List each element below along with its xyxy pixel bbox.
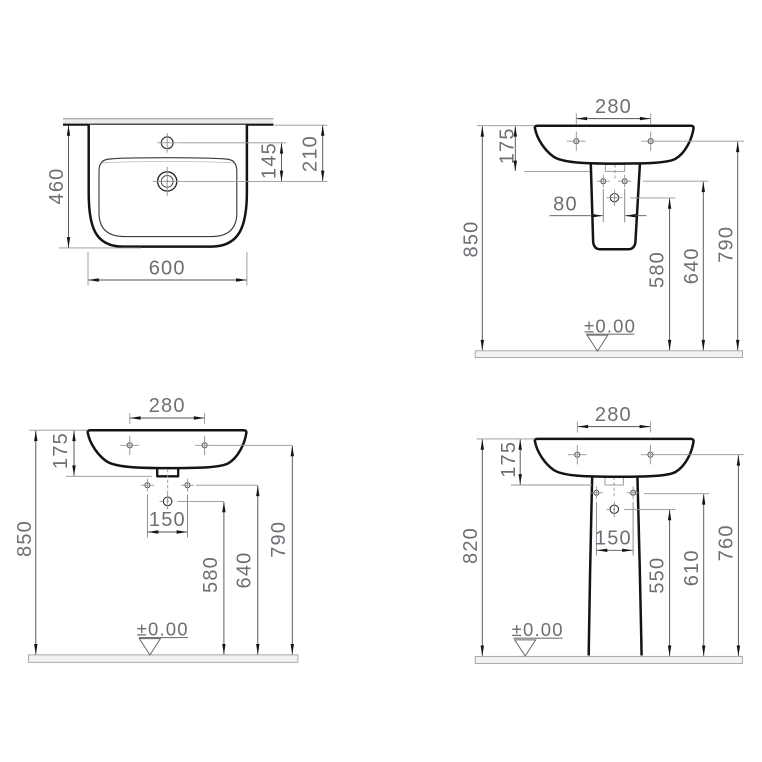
- svg-text:175: 175: [497, 127, 519, 164]
- svg-text:80: 80: [553, 194, 578, 216]
- svg-text:150: 150: [595, 527, 632, 549]
- svg-text:280: 280: [595, 96, 632, 118]
- svg-text:580: 580: [646, 251, 668, 288]
- svg-text:±0.00: ±0.00: [584, 316, 636, 337]
- svg-text:790: 790: [716, 226, 738, 263]
- svg-text:175: 175: [50, 432, 72, 469]
- svg-text:±0.00: ±0.00: [512, 619, 564, 640]
- svg-text:790: 790: [268, 521, 290, 558]
- svg-text:760: 760: [716, 524, 738, 561]
- svg-text:640: 640: [234, 552, 256, 589]
- svg-text:850: 850: [14, 520, 36, 557]
- svg-text:640: 640: [681, 247, 703, 284]
- svg-text:820: 820: [460, 527, 482, 564]
- svg-text:460: 460: [46, 168, 68, 205]
- svg-text:210: 210: [300, 135, 322, 172]
- svg-text:±0.00: ±0.00: [137, 619, 189, 640]
- svg-text:150: 150: [149, 509, 186, 531]
- svg-text:850: 850: [460, 221, 482, 258]
- svg-text:280: 280: [595, 404, 632, 426]
- svg-text:610: 610: [681, 549, 703, 586]
- svg-text:175: 175: [498, 441, 520, 478]
- svg-text:550: 550: [646, 557, 668, 594]
- svg-text:145: 145: [259, 142, 281, 179]
- svg-text:580: 580: [200, 556, 222, 593]
- svg-text:600: 600: [149, 258, 186, 280]
- svg-text:280: 280: [149, 395, 186, 417]
